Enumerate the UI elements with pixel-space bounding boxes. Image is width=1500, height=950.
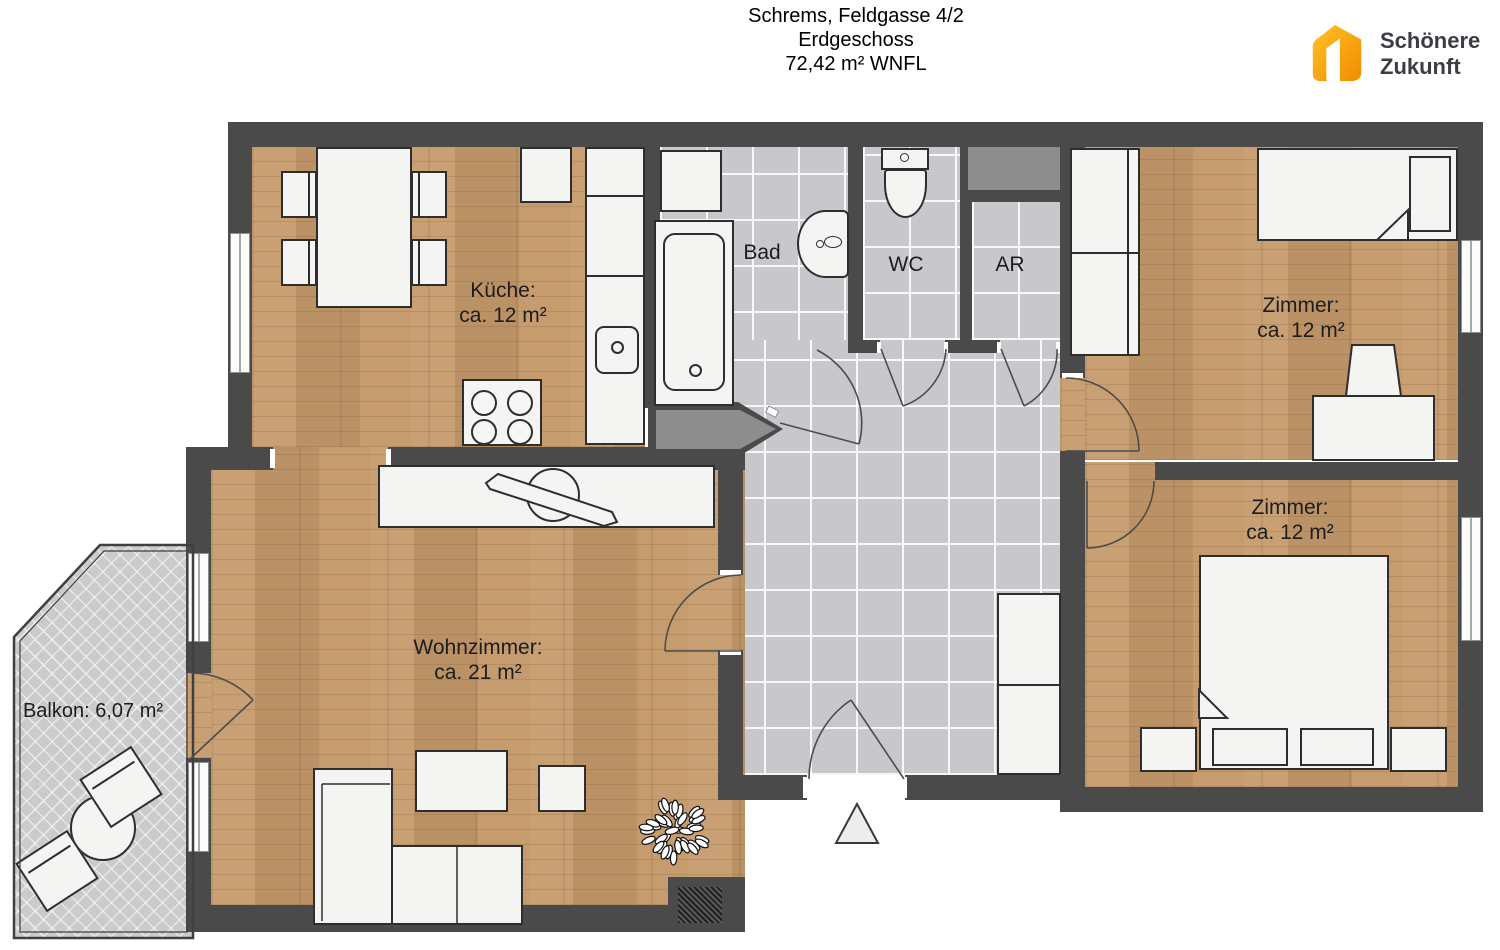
wall xyxy=(945,340,972,353)
balcony-label: Balkon: 6,07 m² xyxy=(23,699,163,724)
kitchen-window xyxy=(230,233,250,373)
door-jamb xyxy=(803,777,807,798)
bathtub xyxy=(654,220,734,406)
nightstand xyxy=(1390,727,1447,772)
bath-label: Bad xyxy=(743,240,780,265)
bedroom-top-label: Zimmer: ca. 12 m² xyxy=(1257,293,1345,343)
burner xyxy=(471,390,497,416)
washing-machine xyxy=(660,150,722,212)
door-jamb xyxy=(997,342,1001,353)
kitchen-counter xyxy=(585,147,645,445)
pillow xyxy=(1409,156,1451,232)
bedroom-top-window xyxy=(1461,240,1481,333)
dining-table xyxy=(316,147,412,308)
wall xyxy=(228,122,1483,147)
bedroom-top-label-name: Zimmer: xyxy=(1257,293,1345,318)
brand-name: Schönere Zukunft xyxy=(1380,28,1480,80)
kitchen-label-area: ca. 12 m² xyxy=(459,303,547,328)
side-table xyxy=(538,765,586,812)
pillow xyxy=(1300,728,1374,766)
door-jamb xyxy=(944,342,948,353)
plan-title-floor: Erdgeschoss xyxy=(748,28,964,52)
bedroom-bottom-label-area: ca. 12 m² xyxy=(1246,520,1334,545)
burner xyxy=(471,419,497,445)
storage-label: AR xyxy=(995,252,1024,277)
wc-label: WC xyxy=(889,252,924,277)
wall xyxy=(972,340,1000,353)
plan-title-area: 72,42 m² WNFL xyxy=(748,52,964,76)
chimney-hatch xyxy=(678,887,722,923)
balcony-door-threshold xyxy=(186,673,212,758)
door-jamb xyxy=(270,449,275,468)
bedroom-bottom-door-threshold xyxy=(1085,462,1155,480)
pillow xyxy=(1212,728,1288,766)
toilet-button xyxy=(900,153,909,162)
door-jamb xyxy=(1062,373,1083,378)
duct-shaft xyxy=(968,147,1060,190)
dining-chair xyxy=(281,171,317,218)
house-icon xyxy=(1306,22,1368,86)
hall-wardrobe xyxy=(997,593,1061,775)
door-jamb xyxy=(720,570,741,575)
sofa-chaise xyxy=(313,768,393,925)
bath-faucet xyxy=(824,236,842,248)
dining-chair xyxy=(411,239,447,286)
bedroom-bottom-label: Zimmer: ca. 12 m² xyxy=(1246,495,1334,545)
sofa-seat xyxy=(391,845,523,925)
sideboard xyxy=(378,465,715,528)
door-jamb xyxy=(877,342,881,353)
bedroom-top-door-threshold xyxy=(1060,378,1085,451)
wall xyxy=(968,190,1060,202)
fridge xyxy=(520,147,572,203)
living-window-upper xyxy=(188,553,209,642)
floorplan-page: Schrems, Feldgasse 4/2 Erdgeschoss 72,42… xyxy=(0,0,1500,950)
wall xyxy=(1060,480,1085,787)
bath-faucet-dot xyxy=(816,240,824,248)
wall xyxy=(1060,787,1483,812)
bedroom-bottom-window xyxy=(1461,517,1481,641)
dining-chair xyxy=(281,239,317,286)
burner xyxy=(507,390,533,416)
plan-title: Schrems, Feldgasse 4/2 Erdgeschoss 72,42… xyxy=(748,4,964,76)
wall xyxy=(848,147,863,353)
wall xyxy=(1060,450,1085,480)
nightstand xyxy=(1140,727,1197,772)
wall xyxy=(905,775,1060,800)
living-label-name: Wohnzimmer: xyxy=(413,635,542,660)
bedroom-bottom-label-name: Zimmer: xyxy=(1246,495,1334,520)
coffee-table xyxy=(415,750,508,812)
door-jamb xyxy=(1056,342,1060,353)
living-label: Wohnzimmer: ca. 21 m² xyxy=(413,635,542,685)
faucet-dot xyxy=(611,341,624,354)
kitchen-label: Küche: ca. 12 m² xyxy=(459,278,547,328)
brand-name-line1: Schönere xyxy=(1380,28,1480,54)
wall xyxy=(718,775,807,800)
living-window-lower xyxy=(188,762,209,852)
wall xyxy=(718,650,743,775)
bathtub-drain xyxy=(689,364,702,377)
brand-logo: Schönere Zukunft xyxy=(1306,22,1480,86)
desk xyxy=(1312,395,1435,461)
living-label-area: ca. 21 m² xyxy=(413,660,542,685)
plan-title-address: Schrems, Feldgasse 4/2 xyxy=(748,4,964,28)
burner xyxy=(507,419,533,445)
wall xyxy=(1155,462,1483,480)
door-jamb xyxy=(903,777,907,798)
kitchen-label-name: Küche: xyxy=(459,278,547,303)
dining-chair xyxy=(411,171,447,218)
bedroom-top-wardrobe xyxy=(1070,148,1140,356)
entrance-arrow xyxy=(836,804,878,843)
brand-name-line2: Zukunft xyxy=(1380,54,1480,80)
door-jamb xyxy=(720,650,741,655)
bedroom-top-label-area: ca. 12 m² xyxy=(1257,318,1345,343)
